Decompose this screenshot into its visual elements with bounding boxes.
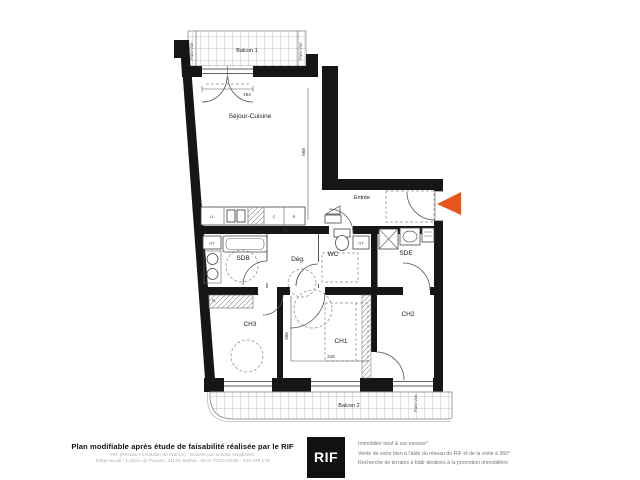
footer-address-line: Siège social : 1 place de Pavans, 31130,… (55, 459, 310, 464)
footer-left-block: Plan modifiable après étude de faisabili… (55, 442, 310, 464)
room-sejour: Séjour-Cuisine 484 568 LL C R (201, 86, 308, 225)
room-entree-label: Entrée (354, 195, 370, 201)
room-ch2-label: CH2 (401, 311, 414, 318)
kitchen-c-label: C (273, 215, 276, 219)
room-deg: Dég. (288, 256, 318, 297)
floor-plan: Balcon 1 Pare-Vue Pare-Vue (0, 0, 640, 432)
room-ch3-label: CH3 (243, 321, 256, 328)
balcony-2-label: Balcon 2 (338, 403, 359, 409)
ch3-pl-label: PL (212, 299, 217, 303)
balcony-2: Balcon 2 Pare-Vue (208, 392, 453, 422)
balcony-1-label: Balcon 1 (236, 48, 257, 54)
room-deg-label: Dég. (291, 256, 305, 263)
dim-306: 306 (284, 332, 289, 340)
footer-plan-note: Plan modifiable après étude de faisabili… (55, 442, 310, 451)
footer-service-line-2: Vente de votre bien à l'aide du réseau d… (358, 451, 588, 457)
room-ch3: PL CH3 (209, 295, 283, 372)
room-ch1-label: CH1 (334, 338, 347, 345)
dim-568: 568 (301, 148, 306, 156)
room-ch2: CH2 (362, 295, 415, 380)
room-sejour-label: Séjour-Cuisine (229, 113, 272, 120)
kitchen-r-label: R (293, 215, 296, 219)
footer: Plan modifiable après étude de faisabili… (0, 432, 640, 480)
pl-tag-deg: PL (284, 229, 289, 233)
pare-vue-right-label: Pare-Vue (298, 42, 303, 60)
room-sde: SDE (379, 228, 434, 290)
kitchen-ll-label: LL (210, 215, 214, 219)
room-wc: GT WC (322, 229, 369, 282)
room-sdb-label: SDB (236, 255, 249, 262)
room-ch1: CH1 306 315 (284, 290, 369, 361)
pare-vue-bottom-label: Pare-Vue (413, 394, 418, 412)
dim-484: 484 (243, 92, 251, 97)
kitchen-counter: LL C R (201, 207, 305, 225)
dim-315: 315 (327, 354, 335, 359)
footer-service-line-1: Immobilier neuf & sur-mesure* (358, 441, 588, 447)
footer-right-block: Immobilier neuf & sur-mesure* Vente de v… (358, 441, 588, 470)
footer-company-line: RIF (Réseau Immobilier de France) - Soci… (55, 453, 310, 458)
wc-gt-label: GT (358, 242, 364, 246)
room-wc-label: WC (328, 251, 339, 258)
room-sdb: GT SDB PL (203, 229, 288, 285)
room-sde-label: SDE (399, 250, 413, 257)
footer-service-line-3: Recherche de terrains à bâtir destinés à… (358, 460, 588, 466)
sdb-gt-label: GT (209, 242, 215, 246)
balcony-1: Balcon 1 Pare-Vue Pare-Vue (188, 31, 306, 66)
rif-logo: RIF (307, 437, 345, 478)
